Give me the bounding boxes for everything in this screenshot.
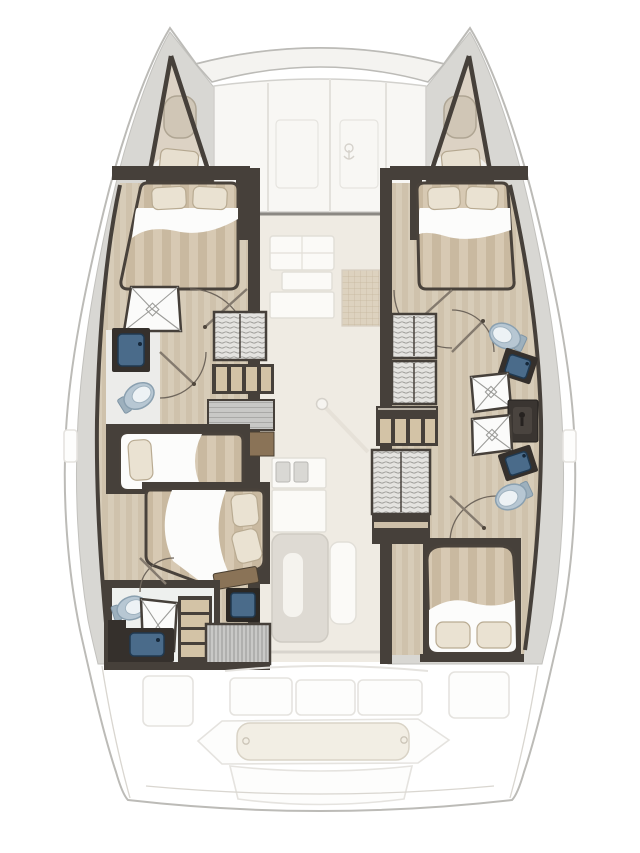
stairs-icon (376, 416, 438, 446)
pillow-icon (151, 186, 186, 210)
cockpit-seat (358, 680, 422, 715)
shelf-band (376, 406, 438, 416)
pillow-icon (477, 622, 511, 648)
cockpit-seat (230, 678, 292, 715)
side-deck-step (64, 430, 77, 462)
swim-platform (230, 766, 412, 805)
pillow-icon (230, 493, 259, 528)
cockpit-seat (296, 680, 355, 715)
starboard-forward-cabin (417, 183, 514, 289)
port-forward-cabin (121, 183, 238, 289)
bathroom-cabinet (108, 620, 126, 664)
starboard-hull (372, 166, 541, 664)
starboard-aft-wall (420, 654, 524, 662)
aft-bench-cushion (237, 723, 409, 760)
starboard-aft-cabin (423, 538, 521, 658)
door-knob (192, 382, 196, 386)
port-hull (97, 166, 274, 670)
side-deck-step (563, 430, 576, 462)
door-knob (481, 319, 485, 323)
pillow-icon (192, 186, 227, 210)
galley-counter (272, 490, 326, 532)
sink-icon (276, 462, 290, 482)
port-washbasin-unit (226, 588, 260, 622)
pillow-icon (465, 186, 498, 210)
door-knob (482, 526, 486, 530)
floor-plan-page (0, 0, 640, 853)
saloon-nav-seat (342, 270, 380, 326)
stairs-icon (212, 364, 274, 394)
pillow-icon (436, 622, 470, 648)
sink-icon (122, 628, 174, 662)
saloon-bench (330, 542, 356, 624)
bathroom-cabinet (508, 400, 538, 442)
galley-cabinet (270, 292, 334, 318)
floor-plan-canvas (0, 0, 640, 853)
cockpit-seat (143, 676, 193, 726)
mast-post (317, 399, 328, 410)
shelf-strip (374, 522, 428, 528)
port-cabin-forward-wall (112, 166, 250, 180)
sink-icon (294, 462, 308, 482)
saloon-table-top (283, 553, 303, 617)
wall-segment (372, 514, 430, 544)
galley-cabinet (282, 272, 332, 290)
pillow-icon (128, 439, 154, 481)
cockpit-seat (449, 672, 509, 718)
pillow-icon (427, 186, 460, 210)
sink-icon (112, 328, 150, 372)
engine-room-steps (206, 624, 270, 664)
door-knob (203, 325, 207, 329)
